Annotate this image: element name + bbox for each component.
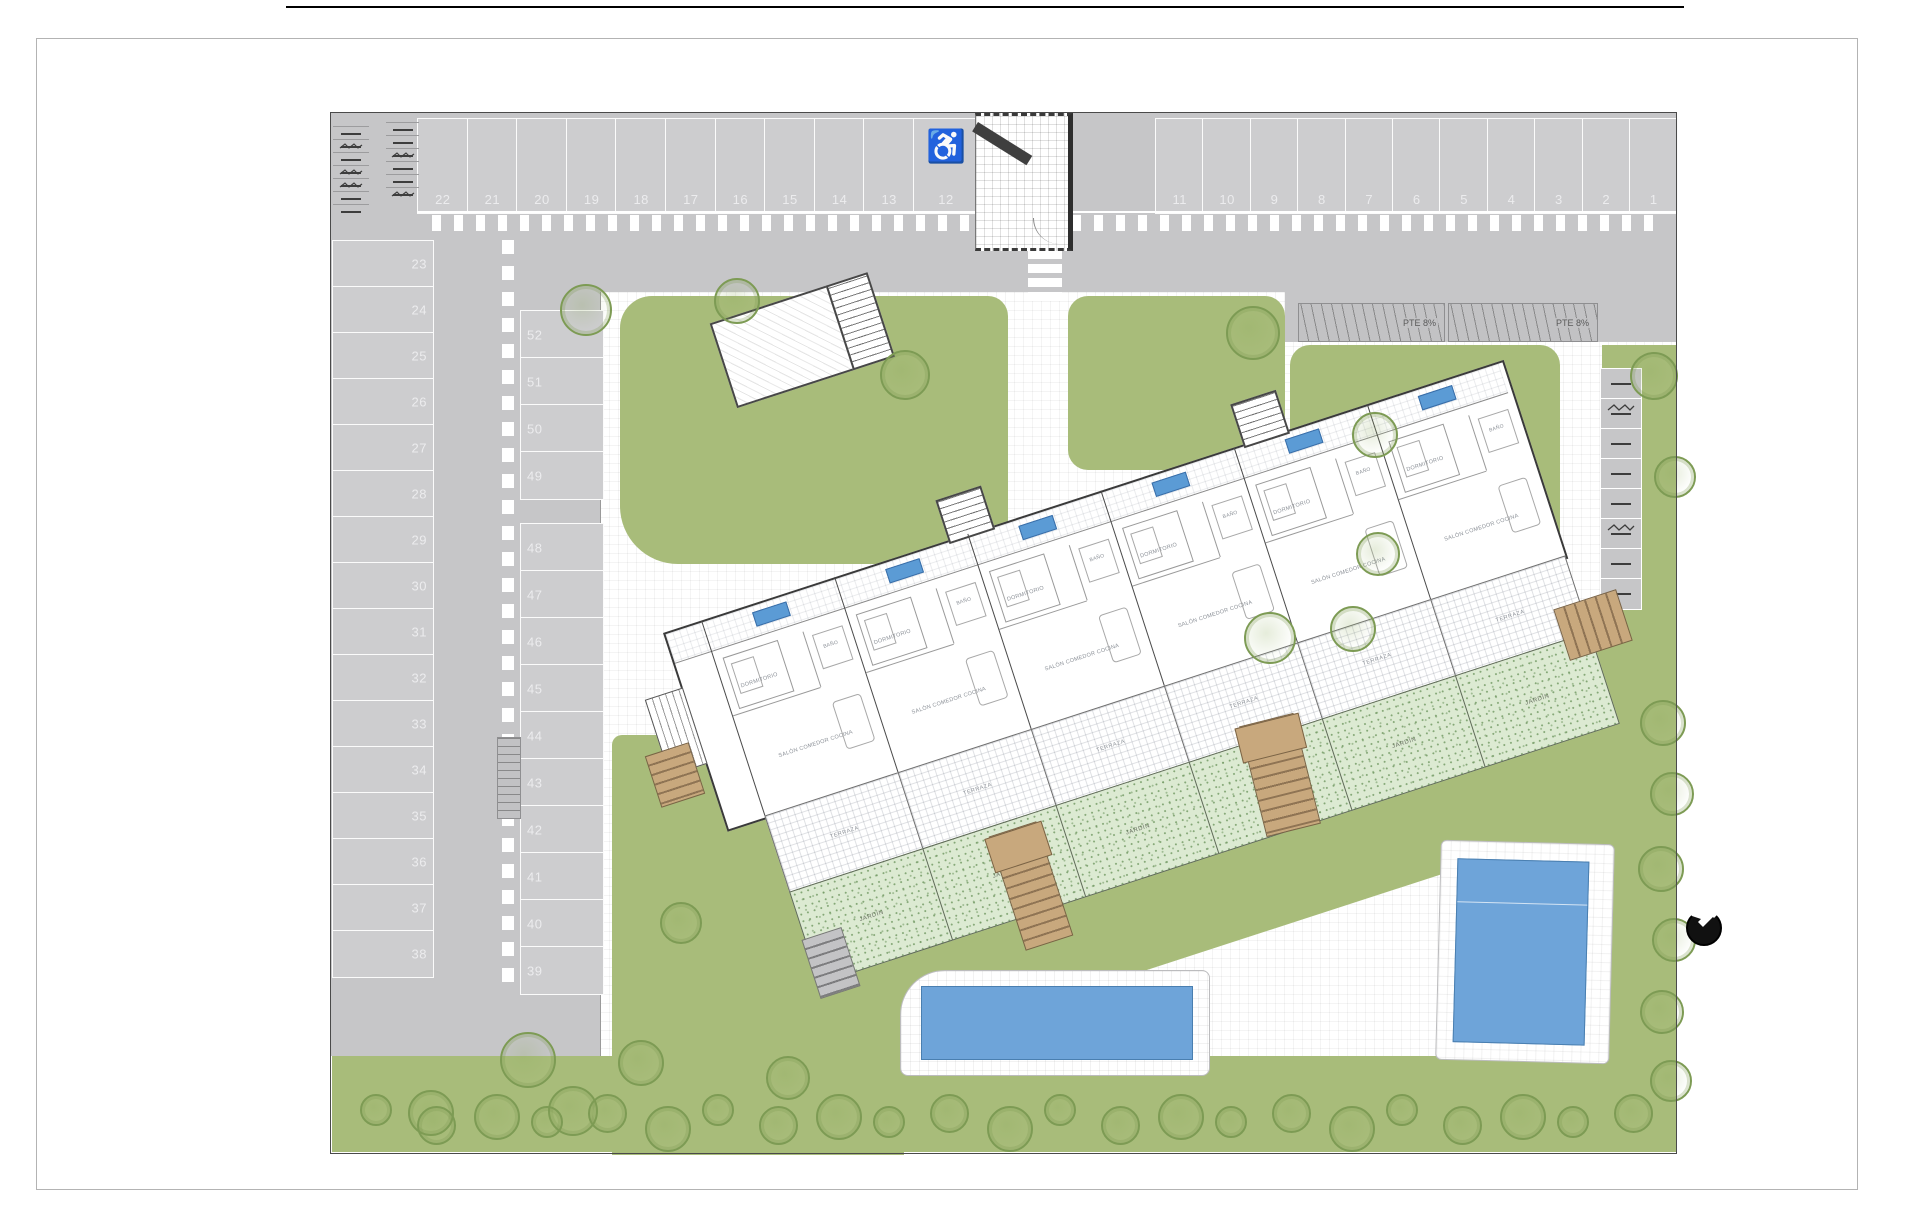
- parking-stall: 50: [520, 404, 604, 453]
- stall-bar: [1611, 503, 1631, 505]
- lane-dash: [476, 215, 485, 231]
- tree-icon: [1356, 532, 1400, 576]
- bicycle-icon: [390, 189, 416, 199]
- bike-rack-slot: [333, 139, 369, 153]
- lane-dash: [502, 500, 514, 514]
- tree-icon: [1352, 412, 1398, 458]
- lane-dash: [1446, 215, 1455, 231]
- tree-icon: [1044, 1094, 1076, 1126]
- lane-dash: [1072, 215, 1081, 231]
- parking-stall-number: 45: [527, 681, 542, 696]
- lane-dash: [454, 215, 463, 231]
- parking-stall-number: 31: [412, 625, 427, 640]
- lane-dash: [502, 968, 514, 982]
- parking-stall-number: 12: [914, 192, 978, 207]
- lane-dash: [1556, 215, 1565, 231]
- tree-icon: [588, 1094, 627, 1133]
- tree-icon: [714, 278, 760, 324]
- parking-stall: 16: [715, 118, 767, 214]
- lane-dash: [652, 215, 661, 231]
- rack-bar: [341, 133, 361, 135]
- tree-icon: [987, 1106, 1033, 1152]
- parking-stall: 49: [520, 451, 604, 500]
- parking-stall: 18: [615, 118, 667, 214]
- bike-rack-slot: [386, 135, 419, 149]
- parking-stall: 13: [863, 118, 915, 214]
- terrace-label: TERRAZA: [1043, 722, 1178, 771]
- parking-stall-number: 41: [527, 869, 542, 884]
- stair-flight: [972, 122, 1032, 165]
- lane-dash: [502, 682, 514, 696]
- parking-stall-number: 27: [412, 441, 427, 456]
- rack-bar: [341, 198, 361, 200]
- tree-icon: [1272, 1094, 1311, 1133]
- parking-stall: 32: [332, 654, 434, 702]
- tree-icon: [1443, 1106, 1482, 1145]
- parking-stall: 41: [520, 852, 604, 901]
- parking-stall: 48: [520, 523, 604, 572]
- crosswalk-bar: [1028, 250, 1062, 259]
- tree-icon: [1386, 1094, 1418, 1126]
- parking-stall: 24: [332, 286, 434, 334]
- parking-stall: 35: [332, 792, 434, 840]
- rack-bar: [341, 159, 361, 161]
- tree-icon: [1329, 1106, 1375, 1152]
- parking-stall: 46: [520, 617, 604, 666]
- tree-icon: [360, 1094, 392, 1126]
- lane-dash: [502, 864, 514, 878]
- parking-stall-number: 10: [1203, 192, 1250, 207]
- small-pool-deck: [1435, 840, 1615, 1064]
- parking-stall-number: 16: [716, 192, 766, 207]
- lane-dash: [1622, 215, 1631, 231]
- rack-bar: [393, 181, 413, 183]
- tree-icon: [560, 284, 612, 336]
- unit-badge: [1018, 515, 1057, 540]
- parking-stall: 51: [520, 357, 604, 406]
- ramp-8-percent: PTE 8%: [1298, 303, 1445, 342]
- tree-icon: [1640, 700, 1686, 746]
- main-pool-deck: [900, 970, 1210, 1076]
- parking-stall-number: 26: [412, 395, 427, 410]
- tree-icon: [500, 1032, 556, 1088]
- motorcycle-stall: [1600, 548, 1642, 580]
- crosswalk-bar: [1028, 278, 1062, 287]
- lane-dash: [1270, 215, 1279, 231]
- garden-label: JARDÍN: [1470, 675, 1605, 724]
- tree-icon: [759, 1106, 798, 1145]
- parking-stall-number: 11: [1156, 192, 1203, 207]
- drawing-top-line: [286, 6, 1684, 8]
- terrace-label: TERRAZA: [910, 765, 1045, 814]
- parking-stall: 38: [332, 930, 434, 978]
- terrace-label: TERRAZA: [1310, 635, 1445, 684]
- lane-dash: [828, 215, 837, 231]
- parking-stall-number: 36: [412, 855, 427, 870]
- crosswalk-bar: [1028, 292, 1062, 301]
- motorcycle-icon: [1606, 521, 1636, 533]
- lane-dash: [1600, 215, 1609, 231]
- parking-stall-number: 3: [1535, 192, 1582, 207]
- stall-bar: [1611, 533, 1631, 535]
- parking-stall: 8: [1297, 118, 1346, 214]
- lane-dash: [502, 604, 514, 618]
- parking-stall: 15: [764, 118, 816, 214]
- parking-stall: 39: [520, 946, 604, 995]
- parking-stall-number: 4: [1488, 192, 1535, 207]
- tree-icon: [880, 350, 930, 400]
- wheelchair-symbol-icon: ♿: [914, 127, 978, 165]
- dining-table: [1497, 477, 1541, 534]
- motorcycle-stall: [1600, 488, 1642, 520]
- bike-rack-slot: [333, 204, 369, 218]
- bike-rack-slot: [333, 126, 369, 140]
- lane-dash: [1116, 215, 1125, 231]
- tree-icon: [1244, 612, 1296, 664]
- lane-dash: [502, 266, 514, 280]
- tree-icon: [1650, 1060, 1692, 1102]
- terrace-label: TERRAZA: [777, 808, 912, 857]
- tree-icon: [930, 1094, 969, 1133]
- parking-stall-number: 2: [1583, 192, 1630, 207]
- parking-stall-number: 30: [412, 579, 427, 594]
- parking-stall: 5: [1439, 118, 1488, 214]
- bike-rack-slot: [386, 187, 419, 201]
- parking-stall: 9: [1250, 118, 1299, 214]
- lane-dash: [564, 215, 573, 231]
- lane-dash: [1402, 215, 1411, 231]
- parking-stall: 34: [332, 746, 434, 794]
- parking-stall-number: 18: [616, 192, 666, 207]
- stall-bar: [1611, 383, 1631, 385]
- parking-stall-number: 5: [1440, 192, 1487, 207]
- parking-stall: 43: [520, 758, 604, 807]
- parking-stall: 7: [1345, 118, 1394, 214]
- parking-stall: 28: [332, 470, 434, 518]
- tree-icon: [645, 1106, 691, 1152]
- parking-stall-number: 39: [527, 963, 542, 978]
- parking-stall-number: 8: [1298, 192, 1345, 207]
- garden-label: JARDÍN: [1070, 805, 1205, 854]
- door-swing-arc: [1033, 218, 1060, 244]
- dining-table: [832, 693, 876, 750]
- lane-dash: [502, 240, 514, 254]
- parking-stall: 10: [1202, 118, 1251, 214]
- parking-stall: 29: [332, 516, 434, 564]
- lane-dash: [718, 215, 727, 231]
- lane-dash: [502, 708, 514, 722]
- tree-icon: [766, 1056, 810, 1100]
- north-arrow-icon: [1684, 908, 1724, 948]
- tree-icon: [1158, 1094, 1204, 1140]
- bike-rack-slot: [386, 161, 419, 175]
- parking-stall: 30: [332, 562, 434, 610]
- parking-stall-number: 50: [527, 421, 542, 436]
- lane-dash: [502, 448, 514, 462]
- accessible-parking-stall: ♿ 12: [913, 118, 979, 214]
- tree-icon: [1630, 352, 1678, 400]
- lane-dash: [1314, 215, 1323, 231]
- pool-lane-line: [1457, 901, 1587, 905]
- unit-badge: [1418, 385, 1457, 410]
- motorcycle-icon: [1606, 401, 1636, 413]
- lane-dash: [498, 215, 507, 231]
- ramp-8-percent: PTE 8%: [1448, 303, 1598, 342]
- lane-dash: [502, 578, 514, 592]
- parking-stall: 3: [1534, 118, 1583, 214]
- lane-dash: [542, 215, 551, 231]
- lane-dash: [502, 630, 514, 644]
- lane-dash: [850, 215, 859, 231]
- lane-dash: [960, 215, 969, 231]
- lane-dash: [696, 215, 705, 231]
- lane-dash: [1512, 215, 1521, 231]
- tree-icon: [1654, 456, 1696, 498]
- parking-stall-number: 38: [412, 947, 427, 962]
- small-pool: [1453, 858, 1590, 1045]
- lane-dash: [1094, 215, 1103, 231]
- tree-icon: [702, 1094, 734, 1126]
- bicycle-icon: [338, 180, 364, 190]
- lane-dash: [502, 890, 514, 904]
- parking-stall-number: 47: [527, 587, 542, 602]
- parking-stall-number: 43: [527, 775, 542, 790]
- parking-stall-number: 28: [412, 487, 427, 502]
- parking-stall: 45: [520, 664, 604, 713]
- lane-dash: [1204, 215, 1213, 231]
- lane-dash: [1644, 215, 1653, 231]
- parking-stall-number: 25: [412, 349, 427, 364]
- bicycle-icon: [338, 167, 364, 177]
- unit-badge: [1151, 472, 1190, 497]
- parking-stall-number: 40: [527, 916, 542, 931]
- bike-rack-slot: [333, 178, 369, 192]
- parking-stall-number: 44: [527, 728, 542, 743]
- parking-stall-number: 52: [527, 327, 542, 342]
- parking-stall-number: 15: [765, 192, 815, 207]
- bike-rack-slot: [333, 191, 369, 205]
- parking-stall: 14: [814, 118, 866, 214]
- lane-dash: [1182, 215, 1191, 231]
- tree-icon: [618, 1040, 664, 1086]
- tree-icon: [474, 1094, 520, 1140]
- tree-icon: [1650, 772, 1694, 816]
- parking-stall: 19: [566, 118, 618, 214]
- lane-dash: [502, 656, 514, 670]
- lane-dash: [608, 215, 617, 231]
- rack-bar: [393, 129, 413, 131]
- parking-stall: 33: [332, 700, 434, 748]
- parking-stall: 17: [665, 118, 717, 214]
- tree-icon: [1557, 1106, 1589, 1138]
- main-pool: [921, 986, 1193, 1060]
- tree-icon: [1640, 990, 1684, 1034]
- tree-icon: [1614, 1094, 1653, 1133]
- lane-dash: [1292, 215, 1301, 231]
- unit-badge: [1285, 428, 1324, 453]
- lane-dash: [916, 215, 925, 231]
- lane-dash: [762, 215, 771, 231]
- parking-stall-number: 33: [412, 717, 427, 732]
- lane-dash: [1226, 215, 1235, 231]
- parking-stall: 27: [332, 424, 434, 472]
- lane-dash: [1534, 215, 1543, 231]
- lane-dash: [1490, 215, 1499, 231]
- parking-stall-number: 17: [666, 192, 716, 207]
- lane-dash: [674, 215, 683, 231]
- parking-stall: 42: [520, 805, 604, 854]
- bike-rack-slot: [386, 148, 419, 162]
- stall-bar: [1611, 413, 1631, 415]
- lane-dash: [502, 552, 514, 566]
- motorcycle-stall: [1600, 458, 1642, 490]
- lane-dash: [1138, 215, 1147, 231]
- parking-stall-number: 19: [567, 192, 617, 207]
- motorcycle-stall: [1600, 518, 1642, 550]
- lane-dash: [894, 215, 903, 231]
- tree-icon: [660, 902, 702, 944]
- parking-stall-number: 22: [418, 192, 468, 207]
- stall-bar: [1611, 473, 1631, 475]
- parking-stall-number: 21: [468, 192, 518, 207]
- small-ramp: [497, 737, 521, 819]
- lane-dash: [520, 215, 529, 231]
- parking-stall: 6: [1392, 118, 1441, 214]
- parking-stall: 23: [332, 240, 434, 288]
- unit-badge: [752, 601, 791, 626]
- lane-dash: [938, 215, 947, 231]
- bicycle-icon: [390, 150, 416, 160]
- parking-stall-number: 9: [1251, 192, 1298, 207]
- parking-stall: 22: [417, 118, 469, 214]
- unit-badge: [885, 558, 924, 583]
- lane-dash: [586, 215, 595, 231]
- dining-table: [965, 650, 1009, 707]
- tree-icon: [1638, 846, 1684, 892]
- parking-stall-number: 42: [527, 822, 542, 837]
- parking-stall: 11: [1155, 118, 1204, 214]
- lane-dash: [502, 838, 514, 852]
- tree-icon: [531, 1106, 563, 1138]
- lane-dash: [502, 422, 514, 436]
- parking-stall: 21: [467, 118, 519, 214]
- tree-icon: [417, 1106, 456, 1145]
- crosswalk-bar: [1028, 264, 1062, 273]
- parking-stall-number: 32: [412, 671, 427, 686]
- parking-stall-number: 29: [412, 533, 427, 548]
- parking-stall: 31: [332, 608, 434, 656]
- parking-stall-number: 49: [527, 468, 542, 483]
- rack-bar: [393, 168, 413, 170]
- lane-dash: [872, 215, 881, 231]
- bike-rack-slot: [386, 174, 419, 188]
- stall-bar: [1611, 563, 1631, 565]
- lane-dash: [1380, 215, 1389, 231]
- entrance-stair-structure: [975, 113, 1073, 251]
- parking-stall: 37: [332, 884, 434, 932]
- parking-stall-number: 46: [527, 634, 542, 649]
- parking-stall: 4: [1487, 118, 1536, 214]
- lane-dash: [502, 474, 514, 488]
- bicycle-icon: [338, 141, 364, 151]
- lane-dash: [502, 344, 514, 358]
- lane-dash: [502, 942, 514, 956]
- stall-bar: [1611, 443, 1631, 445]
- lane-dash: [502, 370, 514, 384]
- parking-stall-number: 6: [1393, 192, 1440, 207]
- dining-table: [1098, 606, 1142, 663]
- bike-rack-slot: [333, 152, 369, 166]
- lane-dash: [502, 396, 514, 410]
- tree-icon: [873, 1106, 905, 1138]
- lane-dash: [1160, 215, 1169, 231]
- tree-icon: [1226, 306, 1280, 360]
- parking-stall-number: 23: [412, 257, 427, 272]
- parking-stall: 26: [332, 378, 434, 426]
- lane-dash: [784, 215, 793, 231]
- parking-stall: 44: [520, 711, 604, 760]
- parking-stall: 2: [1582, 118, 1631, 214]
- parking-stall-number: 20: [517, 192, 567, 207]
- tree-icon: [816, 1094, 862, 1140]
- tree-icon: [1330, 606, 1376, 652]
- lane-dash: [1468, 215, 1477, 231]
- lane-dash: [1424, 215, 1433, 231]
- tree-icon: [1215, 1106, 1247, 1138]
- tree-icon: [1101, 1106, 1140, 1145]
- lane-dash: [502, 916, 514, 930]
- ramp-label: PTE 8%: [1401, 318, 1438, 328]
- parking-stall-number: 37: [412, 901, 427, 916]
- lane-dash: [502, 292, 514, 306]
- bike-rack-slot: [333, 165, 369, 179]
- lane-dash: [630, 215, 639, 231]
- parking-stall-number: 48: [527, 540, 542, 555]
- parking-stall: 25: [332, 332, 434, 380]
- ramp-label: PTE 8%: [1554, 318, 1591, 328]
- lane-dash: [502, 526, 514, 540]
- lane-dash: [1248, 215, 1257, 231]
- parking-stall-number: 1: [1630, 192, 1677, 207]
- rack-bar: [341, 211, 361, 213]
- parking-stall-number: 35: [412, 809, 427, 824]
- parking-stall-number: 14: [815, 192, 865, 207]
- tree-icon: [1500, 1094, 1546, 1140]
- parking-stall: 20: [516, 118, 568, 214]
- parking-stall-number: 7: [1346, 192, 1393, 207]
- parking-stall-number: 34: [412, 763, 427, 778]
- motorcycle-stall: [1600, 428, 1642, 460]
- motorcycle-stall: [1600, 398, 1642, 430]
- parking-stall: 40: [520, 899, 604, 948]
- parking-stall: 36: [332, 838, 434, 886]
- parking-stall-number: 24: [412, 303, 427, 318]
- parking-stall: 1: [1629, 118, 1678, 214]
- lane-dash: [432, 215, 441, 231]
- parking-stall-number: 51: [527, 374, 542, 389]
- bike-rack-slot: [386, 122, 419, 136]
- garden-label: JARDÍN: [1337, 718, 1472, 767]
- lane-dash: [740, 215, 749, 231]
- lane-dash: [502, 318, 514, 332]
- lane-dash: [806, 215, 815, 231]
- lane-dash: [1578, 215, 1587, 231]
- lane-dash: [1336, 215, 1345, 231]
- parking-stall-number: 13: [864, 192, 914, 207]
- parking-stall: 47: [520, 570, 604, 619]
- rack-bar: [393, 142, 413, 144]
- lane-dash: [1358, 215, 1367, 231]
